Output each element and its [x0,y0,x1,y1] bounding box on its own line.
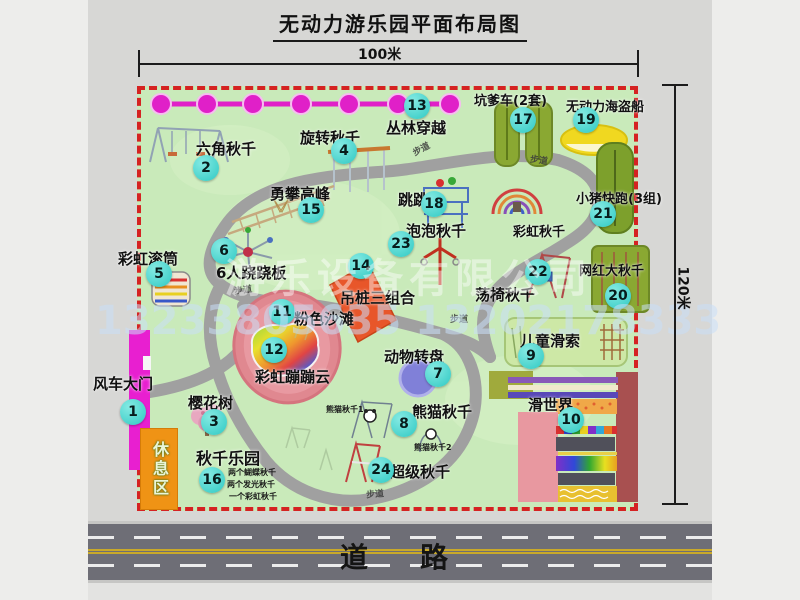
swing-park-line-3: 一个彩虹秋千 [229,491,277,502]
attraction-label-23: 泡泡秋千 [406,220,466,241]
attraction-badge-7: 7 [425,361,451,387]
attraction-badge-12: 12 [261,337,287,363]
panda-swing-2-sublabel: 熊猫秋千2 [414,442,452,453]
road-label: 道 路 [88,536,712,576]
attraction-badge-21: 21 [590,201,616,227]
rest-area-label: 休息区 [147,441,171,498]
attraction-label-14: 吊桩三组合 [340,287,415,308]
attraction-badge-24: 24 [368,457,394,483]
width-dim-left-tick [138,50,140,77]
attraction-label-24: 超级秋千 [390,461,450,482]
attraction-badge-18: 18 [421,191,447,217]
width-dim-right-tick [637,50,639,77]
attraction-label-11: 粉色沙滩 [294,308,354,329]
below-road-strip [88,583,712,600]
attraction-badge-13: 13 [404,93,430,119]
attraction-badge-20: 20 [605,283,631,309]
attraction-badge-9: 9 [518,343,544,369]
attraction-badge-10: 10 [558,407,584,433]
attraction-badge-5: 5 [146,261,172,287]
attraction-badge-1: 1 [120,399,146,425]
height-dimension-label: 120米 [674,266,694,309]
attraction-label-8: 熊猫秋千 [412,401,472,422]
height-dim-top-tick [662,84,688,86]
attraction-label-17: 坑爹车(2套) [474,90,547,109]
attraction-badge-19: 19 [573,107,599,133]
attraction-badge-15: 15 [298,197,324,223]
footpath-label-5: 步道 [365,486,384,501]
attraction-badge-16: 16 [199,467,225,493]
swing-park-line-1: 两个蝴蝶秋千 [228,467,276,478]
page-title: 无动力游乐园平面布局图 [0,8,800,42]
screenshot-stage: 无动力游乐园平面布局图 100米 120米 [0,0,800,600]
swing-park-line-2: 两个发光秋千 [227,479,275,490]
attraction-badge-8: 8 [391,411,417,437]
width-dimension-label: 100米 [358,44,401,64]
attraction-badge-6: 6 [211,238,237,264]
attraction-label-20: 网红大秋千 [579,260,644,279]
attraction-label-1: 风车大门 [93,373,153,394]
attraction-badge-22: 22 [525,259,551,285]
rainbow-swing-label: 彩虹秋千 [513,221,565,240]
attraction-badge-3: 3 [201,409,227,435]
attraction-label-6: 6人跷跷板 [216,262,286,283]
height-dim-bottom-tick [662,503,688,505]
attraction-badge-4: 4 [331,138,357,164]
attraction-badge-23: 23 [388,231,414,257]
rest-area-box: 休息区 [140,428,178,510]
footpath-label-3: 步道 [233,282,253,297]
attraction-label-21: 小猪快跑(3组) [576,188,662,207]
footpath-label-4: 步道 [450,312,468,325]
attraction-badge-11: 11 [269,299,295,325]
footpath-label-2: 步道 [529,152,549,167]
attraction-label-13: 丛林穿越 [386,117,446,138]
attraction-label-12: 彩虹蹦蹦云 [255,366,330,387]
panda-swing-1-sublabel: 熊猫秋千1 [326,404,364,415]
page-title-text: 无动力游乐园平面布局图 [273,8,527,42]
attraction-label-22: 荡椅秋千 [475,284,535,305]
attraction-badge-17: 17 [510,107,536,133]
road: 道 路 [88,521,712,583]
attraction-label-16: 秋千乐园 [196,445,260,469]
attraction-badge-2: 2 [193,155,219,181]
attraction-badge-14: 14 [348,253,374,279]
